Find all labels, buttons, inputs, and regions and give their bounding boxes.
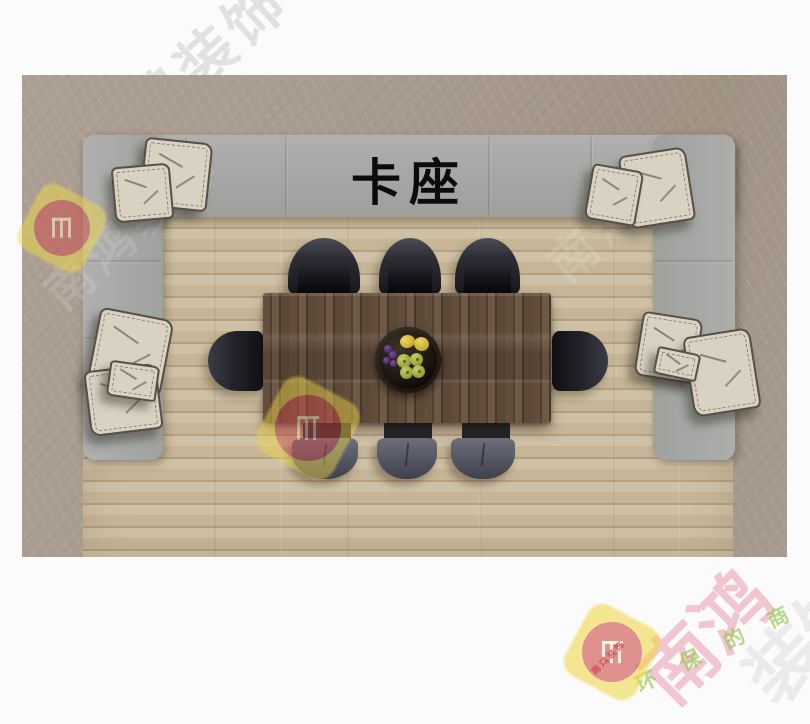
chair-left bbox=[208, 331, 264, 391]
brand-logo-glyph bbox=[297, 416, 319, 440]
pear-icon bbox=[400, 366, 413, 379]
fruit-tray bbox=[375, 327, 441, 393]
grape-icon bbox=[390, 360, 397, 367]
grape-icon bbox=[389, 351, 397, 359]
lemon-icon bbox=[413, 335, 431, 352]
booth-label: 卡座 bbox=[269, 143, 549, 215]
pear-icon bbox=[412, 365, 425, 378]
brand-logo-circle bbox=[24, 190, 100, 266]
pillow bbox=[106, 360, 161, 403]
pear-icon bbox=[410, 353, 423, 366]
brand-logo-circle bbox=[264, 384, 353, 473]
pillow bbox=[584, 163, 645, 227]
bench-seam bbox=[655, 260, 733, 262]
grape-icon bbox=[383, 357, 390, 364]
photo-area: 卡座 南鸿装饰 南鸿 bbox=[22, 75, 787, 557]
pillow bbox=[111, 163, 175, 224]
brand-logo-glyph bbox=[52, 218, 71, 238]
